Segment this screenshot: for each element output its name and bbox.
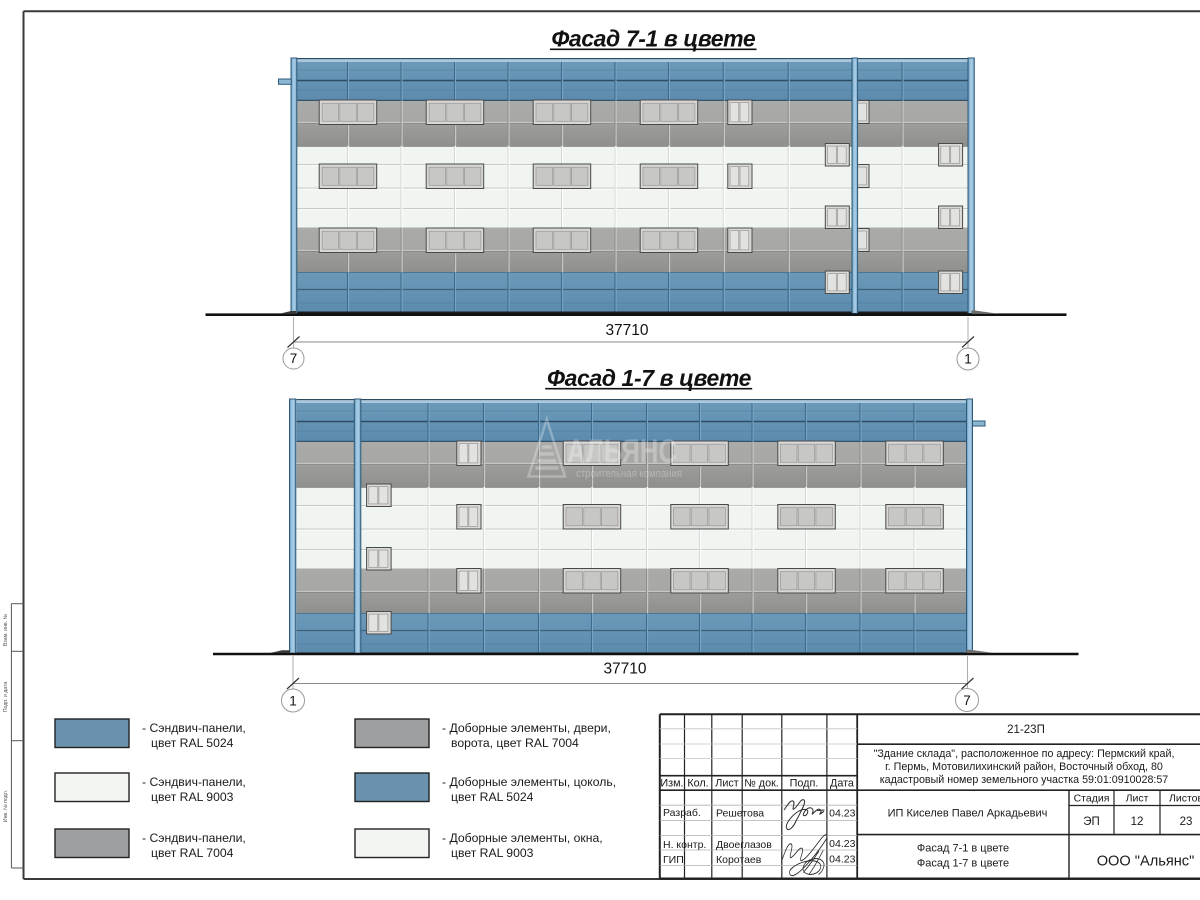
svg-text:- Доборные элементы, окна,: - Доборные элементы, окна, (442, 831, 603, 845)
svg-text:Лист: Лист (1126, 793, 1149, 805)
svg-text:цвет RAL 7004: цвет RAL 7004 (151, 846, 234, 860)
svg-text:Подп.: Подп. (790, 778, 819, 790)
svg-text:1: 1 (289, 693, 297, 708)
svg-text:Решетова: Решетова (716, 808, 764, 820)
svg-text:04.23: 04.23 (829, 808, 855, 820)
svg-text:Дата: Дата (830, 778, 854, 790)
svg-text:- Сэндвич-панели,: - Сэндвич-панели, (142, 775, 246, 789)
svg-text:ворота, цвет RAL 7004: ворота, цвет RAL 7004 (451, 736, 579, 750)
svg-text:Фасад 1-7 в цвете: Фасад 1-7 в цвете (917, 858, 1009, 870)
svg-text:Двоеглазов: Двоеглазов (716, 839, 772, 851)
svg-text:ГИП: ГИП (663, 854, 684, 866)
svg-text:Н. контр.: Н. контр. (663, 839, 706, 851)
svg-text:цвет RAL 9003: цвет RAL 9003 (151, 790, 234, 804)
svg-text:"Здание склада", расположенное: "Здание склада", расположенное по адресу… (874, 748, 1175, 760)
svg-text:Разраб.: Разраб. (663, 807, 701, 819)
svg-text:Коротаев: Коротаев (716, 854, 762, 866)
svg-text:№ док.: № док. (744, 778, 779, 790)
svg-text:- Сэндвич-панели,: - Сэндвич-панели, (142, 831, 246, 845)
svg-text:АЛЬЯНС: АЛЬЯНС (567, 433, 677, 470)
svg-text:ИП Киселев Павел Аркадьевич: ИП Киселев Павел Аркадьевич (888, 808, 1048, 820)
svg-text:цвет RAL 5024: цвет RAL 5024 (451, 790, 534, 804)
svg-text:ООО "Альянс": ООО "Альянс" (1097, 853, 1195, 869)
svg-text:37710: 37710 (603, 661, 646, 678)
svg-text:ЭП: ЭП (1083, 816, 1100, 828)
svg-text:Фасад 1-7 в цвете: Фасад 1-7 в цвете (547, 365, 752, 391)
svg-text:- Доборные элементы, двери,: - Доборные элементы, двери, (442, 721, 611, 735)
svg-text:37710: 37710 (605, 322, 648, 339)
svg-text:23: 23 (1180, 816, 1193, 828)
svg-text:Подп. и дата: Подп. и дата (3, 682, 9, 713)
svg-text:- Доборные элементы, цоколь,: - Доборные элементы, цоколь, (442, 775, 616, 789)
svg-text:- Сэндвич-панели,: - Сэндвич-панели, (142, 721, 246, 735)
svg-text:Взам. инв. №: Взам. инв. № (3, 613, 9, 646)
svg-text:04.23: 04.23 (829, 838, 855, 850)
svg-text:Фасад 7-1 в цвете: Фасад 7-1 в цвете (917, 843, 1009, 855)
svg-text:Листов: Листов (1169, 793, 1200, 805)
svg-text:21-23П: 21-23П (1007, 724, 1045, 736)
svg-text:г. Пермь, Мотовилихинский райо: г. Пермь, Мотовилихинский район, Восточн… (885, 761, 1163, 773)
svg-text:Фасад 7-1 в цвете: Фасад 7-1 в цвете (551, 26, 756, 52)
svg-text:Стадия: Стадия (1074, 793, 1110, 805)
svg-text:Кол.: Кол. (687, 778, 708, 790)
svg-text:строительная компания: строительная компания (576, 468, 682, 480)
svg-text:7: 7 (290, 351, 298, 366)
svg-text:Лист: Лист (715, 778, 739, 790)
svg-text:цвет RAL 9003: цвет RAL 9003 (451, 846, 534, 860)
svg-text:7: 7 (963, 693, 971, 708)
svg-text:12: 12 (1131, 816, 1144, 828)
svg-text:Инв. № подл.: Инв. № подл. (3, 790, 9, 822)
svg-text:цвет RAL 5024: цвет RAL 5024 (151, 736, 234, 750)
svg-text:1: 1 (964, 352, 972, 367)
svg-text:Изм.: Изм. (660, 778, 683, 790)
svg-text:кадастровый номер земельного у: кадастровый номер земельного участка 59:… (880, 774, 1169, 786)
svg-text:04.23: 04.23 (829, 854, 855, 866)
